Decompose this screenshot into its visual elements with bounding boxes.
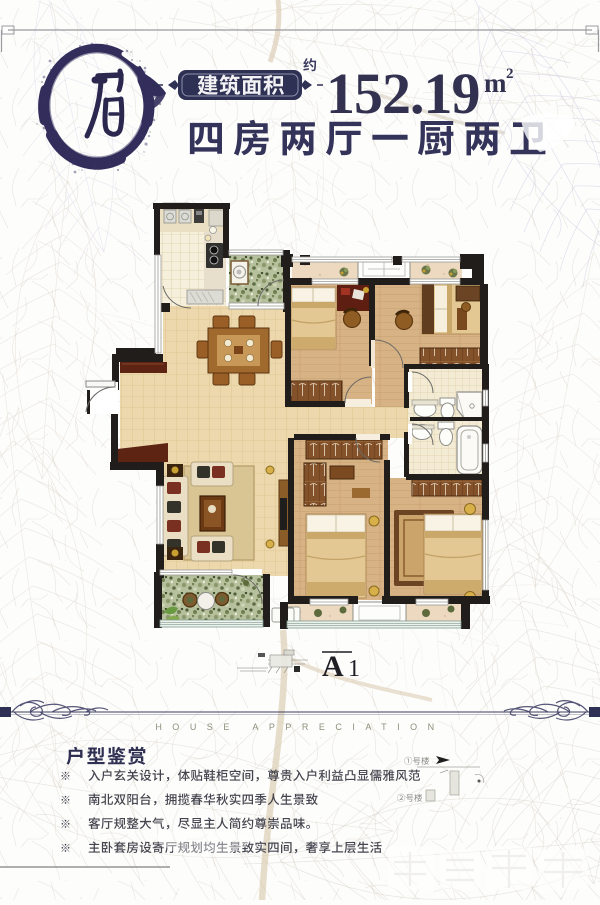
svg-text:152.19: 152.19 (326, 61, 480, 126)
svg-text:2: 2 (506, 66, 514, 82)
svg-text:A: A (322, 650, 344, 683)
svg-text:1: 1 (348, 656, 360, 682)
svg-text:m: m (484, 68, 507, 98)
svg-text:HOUSE APPRECIATION: HOUSE APPRECIATION (155, 722, 444, 732)
